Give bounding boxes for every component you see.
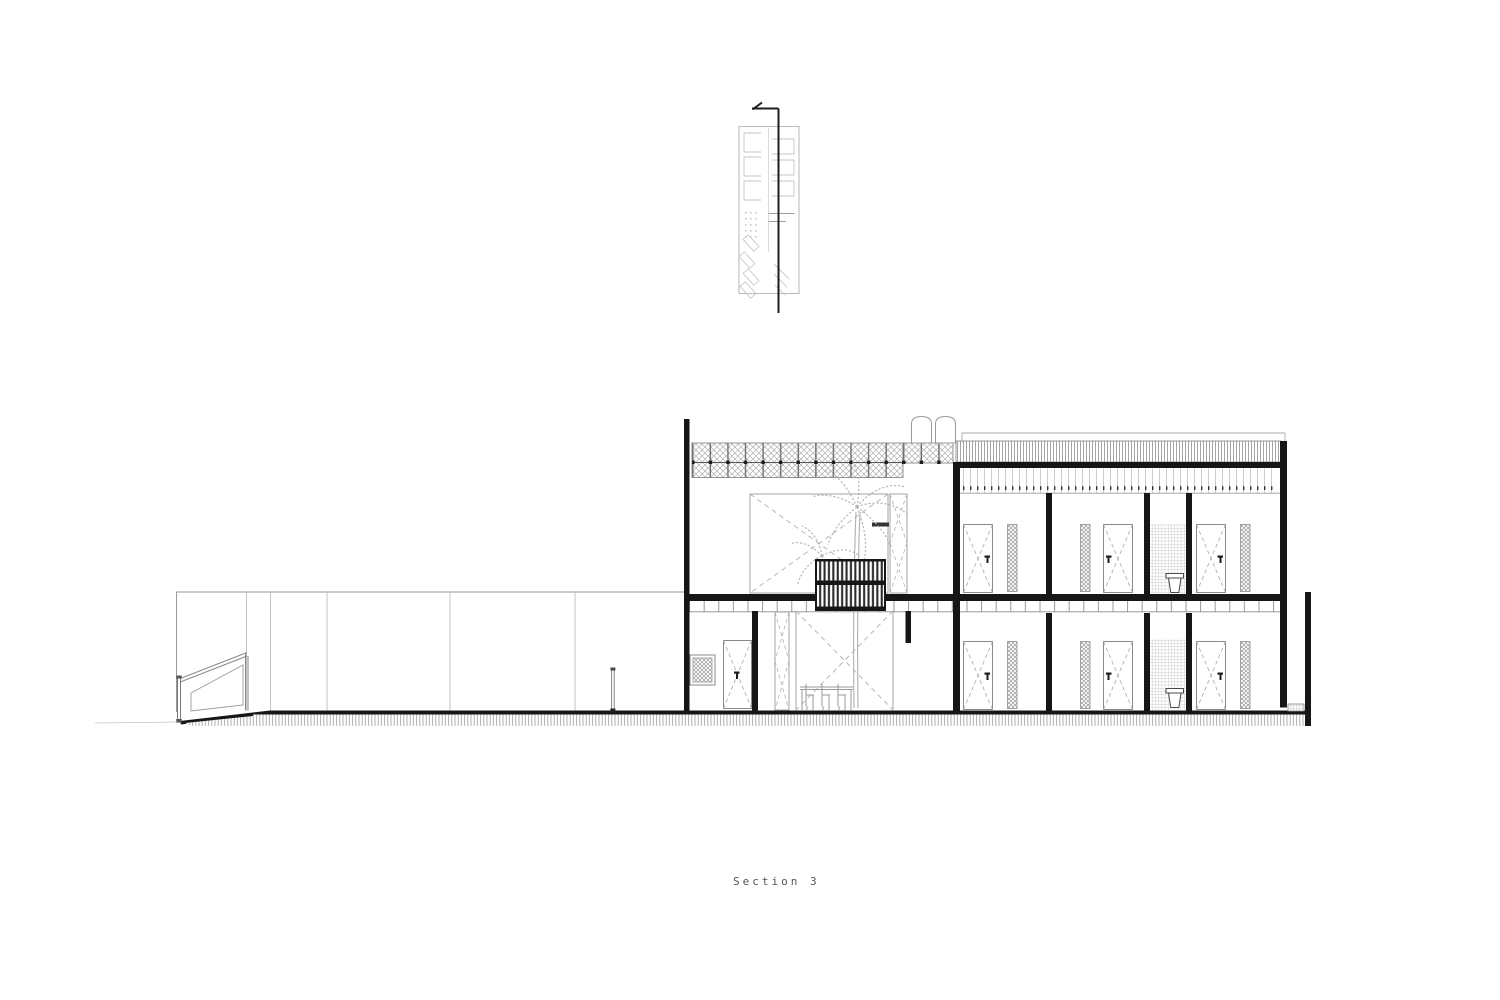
folding-panel	[775, 612, 789, 710]
ledge	[872, 523, 889, 527]
bathroom-tiles	[1150, 639, 1186, 710]
door-side-screen	[1081, 525, 1091, 592]
roof-slab	[953, 462, 1287, 468]
roof-sheet-band	[956, 441, 1281, 462]
drawing-sheet: Section 3	[0, 0, 1500, 1000]
section-drawing	[0, 0, 1500, 1000]
room-door	[1104, 525, 1133, 593]
interior-cut-wall	[752, 611, 758, 711]
ground-faint-line	[95, 722, 180, 723]
bathroom-lower	[1150, 639, 1186, 710]
ground-floor-window	[690, 655, 715, 685]
post-base	[610, 709, 615, 713]
room-door	[1197, 525, 1226, 593]
light-post	[610, 668, 615, 713]
bathroom-upper	[1150, 524, 1186, 594]
door-side-screen	[1241, 642, 1251, 709]
water-tanks	[912, 417, 956, 444]
post-cap	[610, 668, 615, 671]
gravel-strip	[1288, 704, 1304, 711]
ground-line	[95, 711, 1311, 727]
room-door	[1104, 642, 1133, 710]
ramp-railing	[176, 653, 248, 723]
wall-joints	[247, 592, 576, 711]
key-plan	[739, 127, 799, 299]
left-wing	[684, 417, 956, 713]
room-door	[964, 642, 993, 710]
boundary-wall-left	[176, 592, 687, 723]
corridor-door-panel	[890, 494, 907, 593]
door-side-screen	[1241, 525, 1251, 592]
clerestory-band	[960, 469, 1278, 494]
right-wing	[953, 433, 1287, 711]
ground-hatch-band	[253, 715, 1311, 727]
door-side-screen	[1081, 642, 1091, 709]
pergola-roof	[692, 443, 953, 478]
pergola-fixings	[692, 460, 951, 465]
slab-joist-band	[689, 601, 1285, 612]
door-side-screen	[1008, 642, 1018, 709]
left-cut-wall	[684, 419, 690, 712]
door-head-wall	[906, 611, 912, 643]
louvre-screen	[815, 559, 886, 611]
railing-post	[178, 677, 181, 722]
dining-table-chairs	[800, 684, 853, 710]
door-side-screen	[1008, 525, 1018, 592]
first-floor-slab	[689, 594, 1285, 612]
ground-floor-door-left	[724, 641, 752, 709]
boundary-wall-right	[1305, 592, 1311, 726]
room-door	[1197, 642, 1226, 710]
room-door	[964, 525, 993, 593]
drawing-title: Section 3	[733, 875, 819, 888]
roof-parapet	[962, 433, 1285, 441]
